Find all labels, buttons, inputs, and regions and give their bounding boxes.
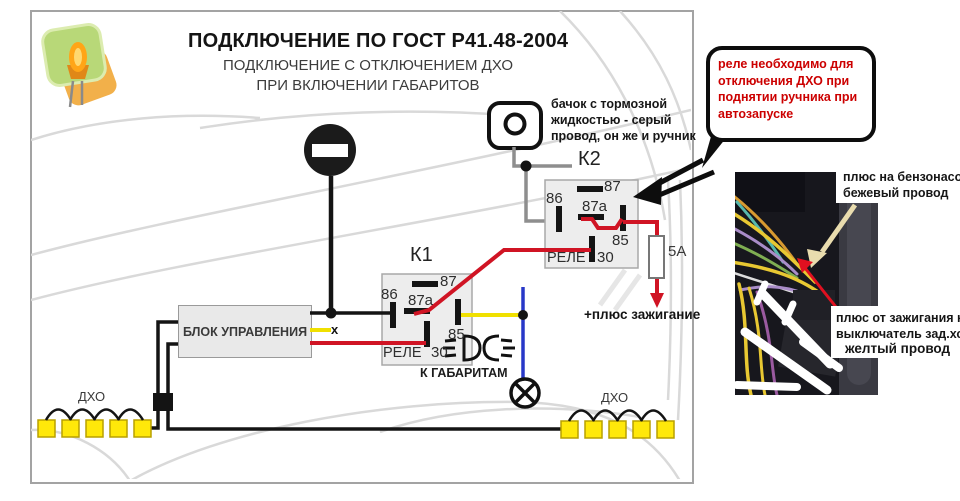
callout-line3: поднятии ручника при (718, 89, 864, 106)
ignition-label-box (831, 306, 960, 358)
screenshot-root: БЛОК УПРАВЛЕНИЯ (0, 0, 960, 501)
callout-line4: автозапуске (718, 106, 864, 123)
wiring-photo-art (735, 172, 878, 395)
control-unit-label: БЛОК УПРАВЛЕНИЯ (183, 325, 307, 339)
diagram-panel (30, 10, 694, 484)
control-unit-box: БЛОК УПРАВЛЕНИЯ (178, 305, 312, 358)
callout-line2: отключения ДХО при (718, 73, 864, 90)
relay-note-callout: реле необходимо для отключения ДХО при п… (706, 46, 876, 142)
fuel-pump-label-box (836, 165, 960, 203)
wiring-photo (735, 172, 878, 395)
callout-line1: реле необходимо для (718, 56, 864, 73)
